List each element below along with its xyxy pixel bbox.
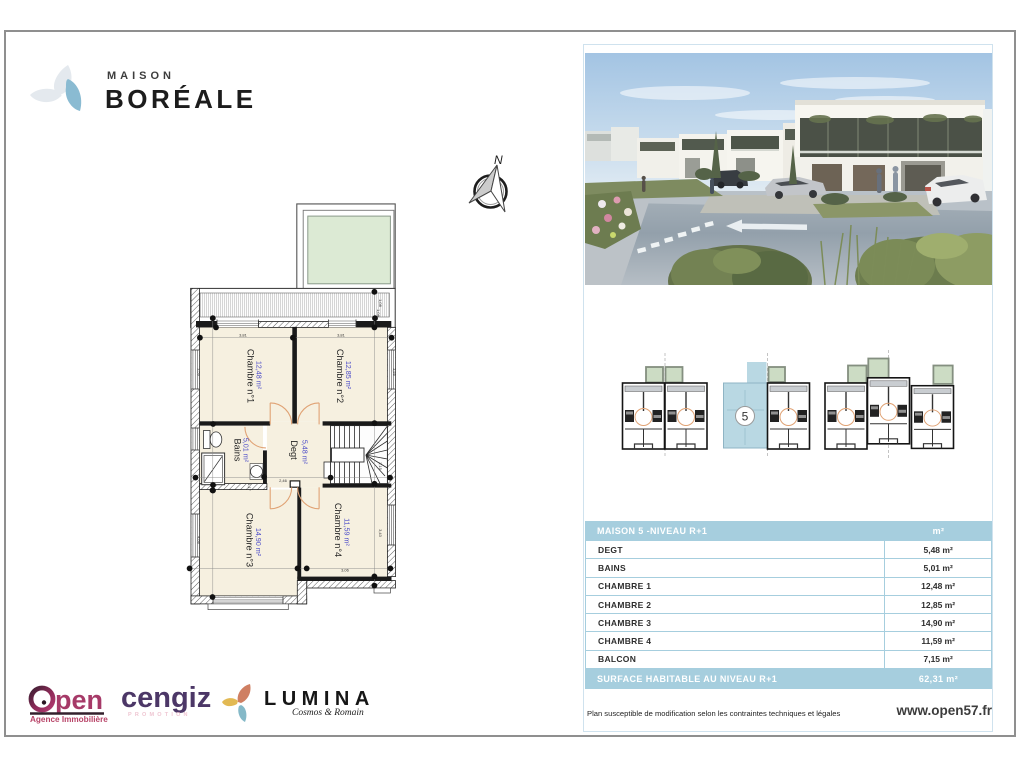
svg-text:Agence Immobilière: Agence Immobilière xyxy=(30,715,108,724)
svg-text:5,01 m²: 5,01 m² xyxy=(242,438,251,463)
svg-text:pen: pen xyxy=(55,685,103,715)
svg-text:Chambre n°3: Chambre n°3 xyxy=(245,513,255,567)
svg-text:1,17: 1,17 xyxy=(247,483,252,492)
svg-text:4,68: 4,68 xyxy=(197,536,202,545)
svg-text:2,46: 2,46 xyxy=(279,478,288,483)
svg-text:3,06: 3,06 xyxy=(341,568,350,573)
svg-text:5,48 m²: 5,48 m² xyxy=(301,440,310,465)
svg-text:14,90 m²: 14,90 m² xyxy=(254,528,263,557)
svg-text:1,08: 1,08 xyxy=(376,309,381,318)
svg-text:Bains: Bains xyxy=(233,439,243,462)
svg-text:1,08: 1,08 xyxy=(378,299,383,308)
svg-text:12,48 m²: 12,48 m² xyxy=(255,361,264,390)
svg-text:12,85 m²: 12,85 m² xyxy=(344,361,353,390)
svg-text:3,59: 3,59 xyxy=(392,368,397,377)
svg-text:Chambre n°1: Chambre n°1 xyxy=(246,349,256,403)
svg-text:Degt: Degt xyxy=(289,440,299,460)
svg-text:3,59: 3,59 xyxy=(197,368,202,377)
svg-text:3,43: 3,43 xyxy=(378,529,383,538)
svg-text:3,81: 3,81 xyxy=(239,333,248,338)
svg-text:N: N xyxy=(494,153,503,167)
svg-text:Chambre n°2: Chambre n°2 xyxy=(335,349,345,403)
svg-text:5: 5 xyxy=(742,410,749,424)
svg-text:3,81: 3,81 xyxy=(337,333,346,338)
svg-text:11,59 m²: 11,59 m² xyxy=(343,518,352,546)
svg-text:2,15: 2,15 xyxy=(378,462,383,471)
svg-text:Chambre n°4: Chambre n°4 xyxy=(333,503,343,557)
